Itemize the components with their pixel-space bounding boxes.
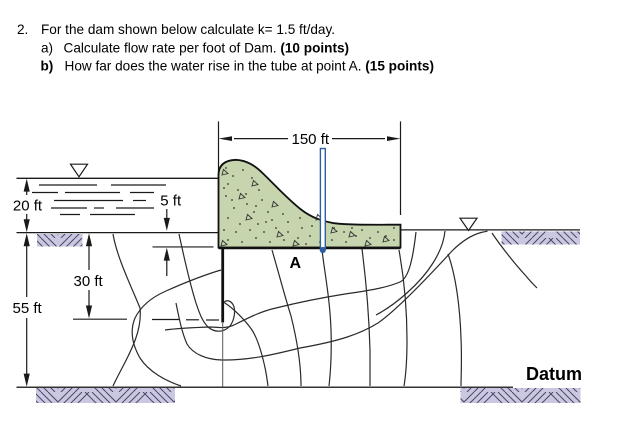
svg-text:b): b) bbox=[41, 59, 54, 74]
svg-text:a): a) bbox=[41, 40, 53, 55]
svg-text:2.: 2. bbox=[17, 22, 28, 37]
svg-text:55 ft: 55 ft bbox=[13, 300, 43, 317]
svg-text:A: A bbox=[290, 255, 302, 272]
svg-text:For the dam shown below calcul: For the dam shown below calculate k= 1.5… bbox=[41, 22, 335, 37]
svg-text:How far does the water rise in: How far does the water rise in the tube … bbox=[65, 59, 434, 74]
svg-text:Datum: Datum bbox=[526, 364, 582, 384]
svg-text:30 ft: 30 ft bbox=[74, 273, 104, 290]
svg-text:5 ft: 5 ft bbox=[160, 193, 182, 210]
svg-text:150 ft: 150 ft bbox=[292, 131, 330, 148]
svg-text:20 ft: 20 ft bbox=[13, 198, 43, 215]
svg-text:Calculate flow rate per foot o: Calculate flow rate per foot of Dam. (10… bbox=[64, 40, 350, 55]
